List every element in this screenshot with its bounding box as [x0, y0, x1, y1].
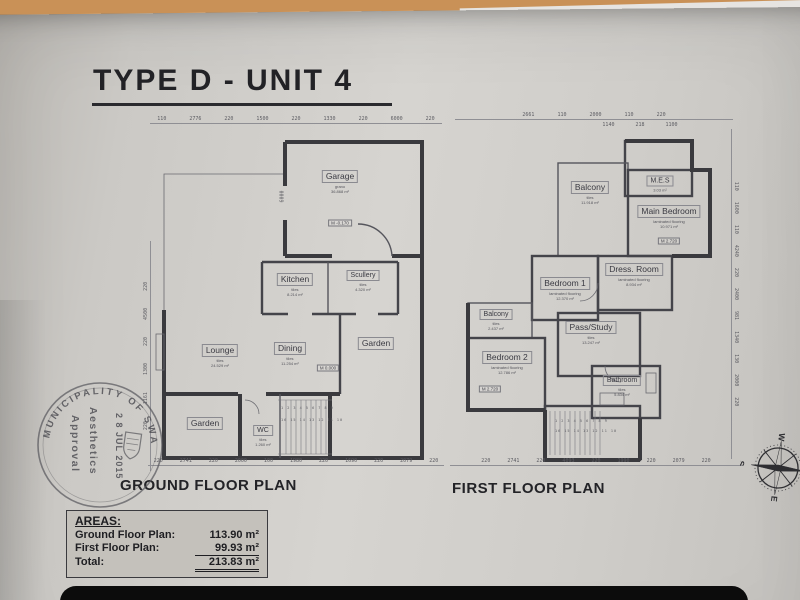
room-label-dress-room: Dress. Room laminated flooring 8.934 m² — [605, 259, 663, 287]
first-floor-walls — [450, 123, 740, 470]
level-marker-bedroom-2: M 2.720 — [479, 386, 501, 393]
first-dim-top: 2661 110 2000 110 220 — [455, 112, 733, 120]
room-label-dining: Dining tiles 11.254 m² — [274, 338, 306, 366]
first-dim-bottom: 220 2741 220 4093 220 1990 220 2079 220 — [450, 458, 742, 466]
room-label-wc: WC tiles 1.260 m² — [253, 419, 273, 447]
areas-label: Ground Floor Plan: — [75, 529, 175, 542]
stair-numbers-up: 1 2 3 4 5 6 7 8 9 — [555, 419, 608, 423]
drawing-title: TYPE D - UNIT 4 — [93, 64, 353, 98]
room-label-main-bedroom: Main Bedroom laminated flooring 10.971 m… — [637, 201, 700, 229]
compass-rose: N E S W — [740, 418, 800, 530]
title-underline — [92, 103, 392, 106]
room-label-garage: Garage grano 36.868 m² — [322, 166, 358, 194]
areas-heading: AREAS: — [75, 514, 259, 528]
room-label-mes: M.E.S 3.03 m² — [646, 170, 673, 193]
stamp-word-approval: Approval — [69, 415, 81, 473]
stair-numbers-up: 1 2 3 4 5 6 7 8 9 — [281, 406, 334, 410]
first-floor-caption: FIRST FLOOR PLAN — [452, 480, 605, 497]
room-label-garden-left: Garden — [187, 413, 223, 431]
ground-dim-bottom: 220 2741 220 2000 100 1980 220 1690 220 … — [148, 458, 444, 466]
areas-row-ground: Ground Floor Plan: 113.90 m² — [75, 529, 259, 542]
municipality-approval-stamp: MUNICIPALITY OF SWA 2 8 JUL 2015 Aesthet… — [28, 375, 178, 515]
room-label-scullery: Scullery tiles 4.320 m² — [347, 264, 380, 292]
areas-value: 99.93 m² — [195, 542, 259, 556]
areas-row-total: Total: 213.83 m² — [75, 556, 259, 572]
room-label-kitchen: Kitchen tiles 8.214 m² — [277, 269, 313, 297]
ground-dim-garage: 6000 — [280, 167, 287, 227]
level-marker-dining: M 0.000 — [317, 365, 339, 372]
room-label-bathroom: Bathroom tiles 5.834 m² — [603, 369, 641, 397]
compass-south-label: S — [740, 460, 747, 467]
room-label-lounge: Lounge tiles 24.529 m² — [202, 340, 238, 368]
photo-of-floor-plan-document: TYPE D - UNIT 4 Garage grano 36.868 m² — [0, 0, 800, 600]
stair-numbers-down: 16 15 14 13 12 11 10 — [281, 418, 343, 422]
areas-value: 213.83 m² — [195, 556, 259, 572]
compass-west-label: W — [776, 433, 787, 443]
areas-label: First Floor Plan: — [75, 542, 159, 556]
level-marker-garage: M -0.170 — [328, 220, 352, 227]
room-label-balcony-small: Balcony tiles 2.437 m² — [480, 303, 513, 331]
stamp-crest-icon — [122, 432, 141, 460]
compass-east-label: E — [769, 495, 780, 502]
stamp-word-aesthetics: Aesthetics — [87, 407, 99, 475]
stair-numbers-down: 16 15 14 13 12 11 10 — [555, 429, 617, 433]
ground-floor-plan: Garage grano 36.868 m² M -0.170 Kitchen … — [150, 128, 445, 470]
areas-table: AREAS: Ground Floor Plan: 113.90 m² Firs… — [66, 510, 268, 578]
first-dim-top-2: 1140 218 1100 — [575, 122, 705, 129]
room-label-garden-right: Garden — [358, 333, 394, 351]
room-label-balcony-top: Balcony tiles 11.918 m² — [571, 177, 609, 205]
level-marker-main-bedroom: M 2.720 — [658, 238, 680, 245]
first-dim-right: 110 1600 110 4240 220 2400 981 1340 130 … — [731, 129, 739, 459]
room-label-pass-study: Pass/Study tiles 13.247 m² — [566, 317, 617, 345]
bottom-overlay-bar — [60, 586, 748, 600]
room-label-bedroom-1: Bedroom 1 laminated flooring 12.370 m² — [540, 273, 590, 301]
first-floor-plan: M.E.S 3.03 m² Balcony tiles 11.918 m² Ma… — [450, 123, 740, 470]
stamp-date: 2 8 JUL 2015 — [114, 413, 124, 479]
room-label-bedroom-2: Bedroom 2 laminated flooring 12.786 m² — [482, 347, 532, 375]
areas-label: Total: — [75, 556, 104, 572]
ground-dim-top: 110 2776 220 1500 220 1330 220 6000 220 — [150, 116, 442, 124]
areas-row-first: First Floor Plan: 99.93 m² — [75, 542, 259, 556]
areas-value: 113.90 m² — [195, 529, 259, 542]
